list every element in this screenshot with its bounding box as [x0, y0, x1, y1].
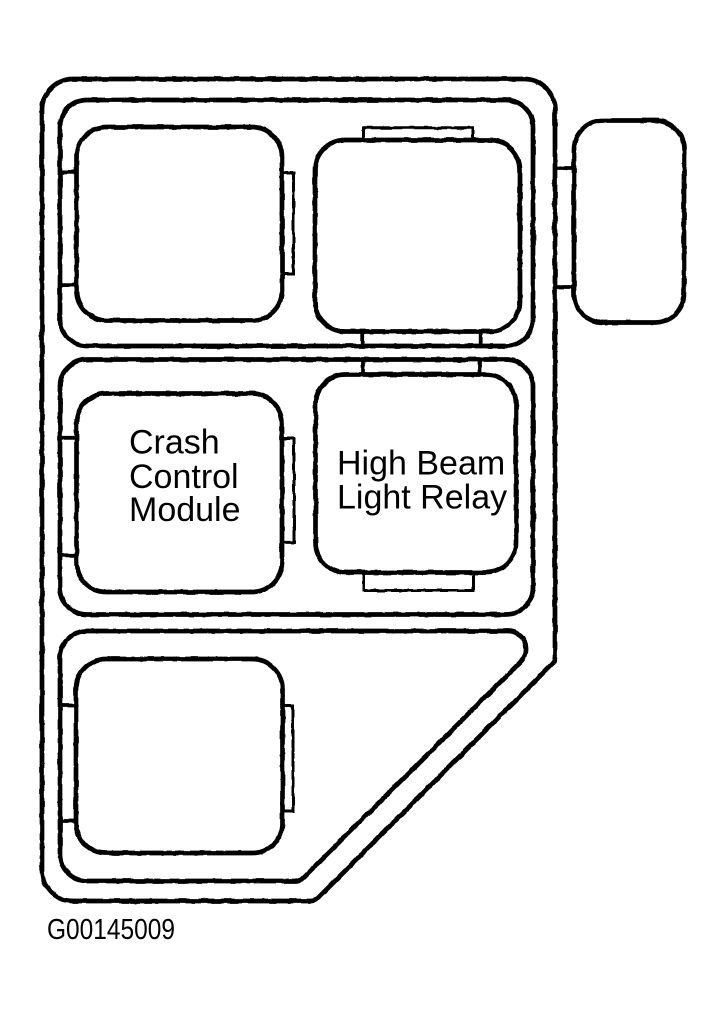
svg-text:Module: Module — [129, 491, 241, 529]
svg-text:Light Relay: Light Relay — [337, 479, 507, 517]
svg-text:G00145009: G00145009 — [47, 914, 175, 946]
svg-text:High Beam: High Beam — [337, 444, 505, 482]
svg-text:Crash: Crash — [129, 424, 220, 462]
